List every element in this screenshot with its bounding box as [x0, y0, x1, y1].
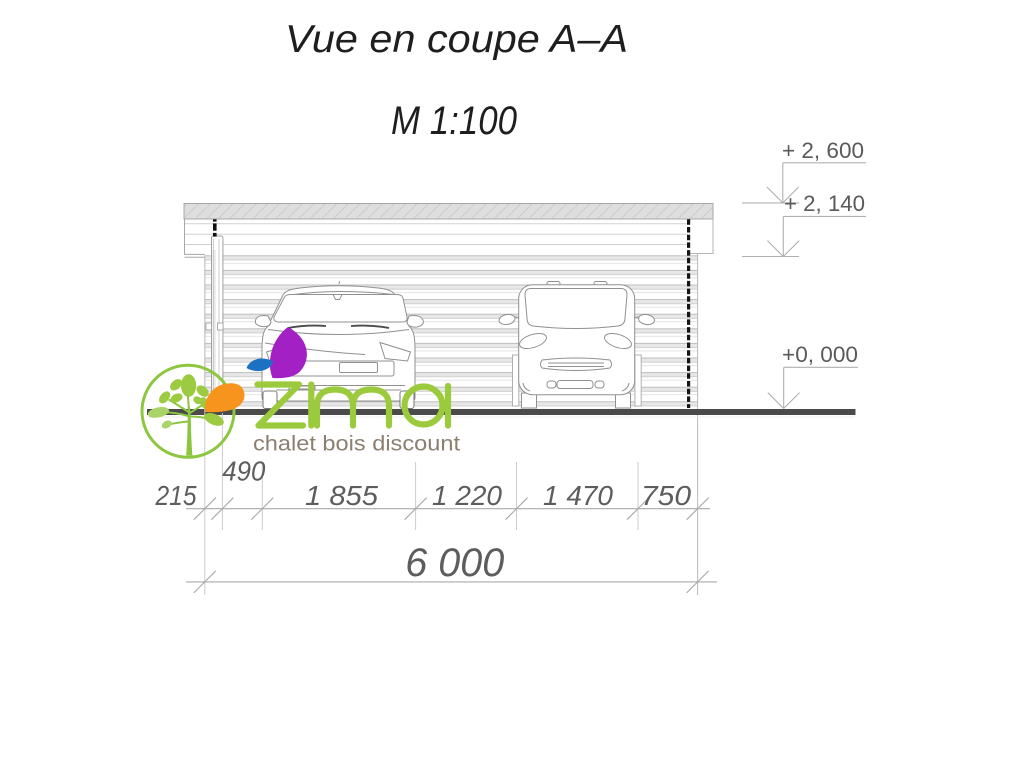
svg-text:1 470: 1 470 — [543, 480, 613, 511]
svg-text:+ 2, 140: + 2, 140 — [784, 191, 865, 216]
svg-text:M 1:100: M 1:100 — [391, 99, 517, 143]
svg-text:6 000: 6 000 — [405, 541, 504, 585]
svg-text:+0, 000: +0, 000 — [782, 342, 858, 367]
svg-text:chalet bois discount: chalet bois discount — [253, 432, 460, 456]
svg-text:+ 2, 600: + 2, 600 — [782, 138, 864, 163]
svg-text:1 220: 1 220 — [432, 480, 502, 511]
svg-text:750: 750 — [641, 480, 691, 511]
svg-text:1 855: 1 855 — [305, 480, 378, 511]
svg-text:215: 215 — [155, 480, 197, 511]
svg-text:Vue en coupe A–A: Vue en coupe A–A — [285, 18, 628, 61]
svg-text:490: 490 — [222, 456, 265, 487]
